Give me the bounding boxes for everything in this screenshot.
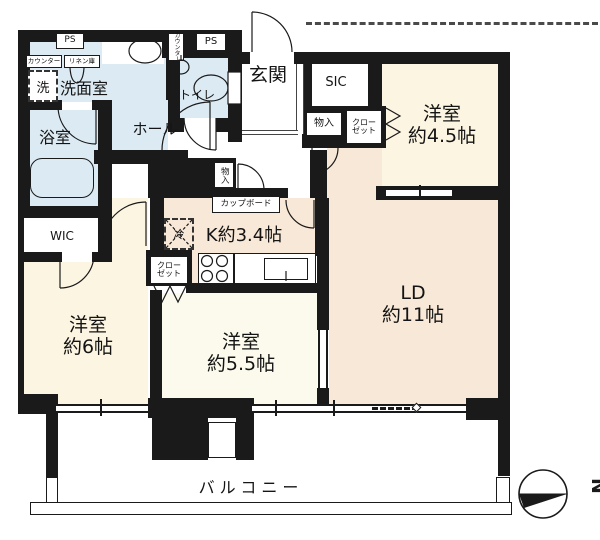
room-name: K約3.4帖 — [206, 225, 282, 246]
bedroom6-floor — [112, 198, 148, 262]
room-name: トイレ — [179, 88, 215, 102]
compass-north-label: N — [587, 478, 600, 494]
wall-segment — [315, 198, 329, 256]
living-dining-floor — [327, 148, 382, 198]
room-size: 約11帖 — [382, 304, 444, 326]
balcony-service-box — [208, 422, 236, 458]
entrance-step-line — [242, 130, 298, 135]
pillar — [152, 418, 208, 460]
window-ld-balcony — [252, 404, 466, 413]
closet-label: ゼット — [352, 127, 376, 135]
wall-segment — [466, 398, 500, 420]
pipe-space-right: PS — [196, 33, 226, 51]
counter-toilet: カウンター — [168, 33, 184, 61]
cupboard-label: カップボード — [220, 200, 271, 209]
room-name: 洋室 — [423, 103, 461, 125]
hall-label: ホール — [124, 118, 186, 142]
balcony-parapet — [46, 477, 58, 504]
window-bedroom6-balcony — [56, 404, 148, 413]
bathtub — [30, 158, 94, 198]
counter-label: カウンター — [173, 32, 179, 62]
compass-circle — [519, 470, 567, 518]
room-name: 洗面室 — [60, 80, 108, 99]
room-size: 約5.5帖 — [207, 353, 275, 375]
wic-label: WIC — [34, 224, 90, 248]
living-dining-label: LD 約11帖 — [358, 274, 468, 334]
storage-label: 物入 — [220, 167, 229, 184]
washroom-label: 洗面室 — [44, 76, 124, 102]
closet-bedroom45: クロー ゼット — [346, 110, 382, 144]
balcony-rail — [30, 502, 512, 515]
room-name: 洋室 — [222, 331, 260, 353]
room-name: 洋室 — [69, 314, 107, 336]
wall-segment — [18, 210, 24, 406]
storage-entry: 物入 — [306, 112, 342, 136]
balcony-parapet — [496, 477, 510, 504]
wall-segment — [150, 196, 164, 258]
ps-label: PS — [205, 37, 217, 48]
wall-segment — [186, 283, 317, 293]
window-tick — [275, 400, 277, 416]
stove — [198, 253, 234, 284]
window-tick — [333, 400, 335, 416]
pipe-space-left: PS — [56, 33, 84, 49]
storage-hall: 物入 — [214, 162, 234, 188]
window-bedroom55-ld — [318, 330, 328, 388]
room-name: 浴室 — [39, 129, 71, 148]
counter-label: カウンター — [28, 58, 61, 65]
ps-label: PS — [64, 36, 75, 45]
storage-label: 物入 — [314, 119, 334, 130]
room-name: LD — [400, 282, 425, 304]
entrance-label: 玄関 — [238, 62, 298, 88]
compass: N — [519, 470, 600, 518]
balcony-label: バルコニー — [158, 474, 344, 502]
window-tick — [419, 185, 421, 200]
wall-segment — [18, 394, 58, 414]
wall-segment — [216, 118, 242, 132]
site-boundary-dashed-line — [306, 22, 598, 25]
room-name: 玄関 — [249, 64, 287, 86]
floorplan: PS PS カウンター リネン庫 カウンター 洗 物入 物入 クロー ゼット ク… — [0, 0, 600, 540]
room-name: WIC — [50, 229, 74, 243]
wall-segment — [24, 252, 62, 262]
pillar — [236, 418, 254, 460]
wall-segment — [18, 206, 112, 218]
wall-segment — [368, 52, 382, 106]
sliding-partition-dashed — [454, 190, 492, 193]
wall-segment — [304, 64, 312, 108]
storage-hall-door-swing — [238, 164, 264, 190]
room-size: 約4.5帖 — [408, 125, 476, 147]
wall-segment — [294, 52, 510, 64]
shoe-closet-label: SIC — [312, 72, 360, 94]
compass-needle — [519, 494, 567, 508]
closet-label: ゼット — [157, 270, 181, 278]
cupboard: カップボード — [212, 196, 280, 213]
bedroom55-label: 洋室 約5.5帖 — [186, 324, 296, 382]
window-tick — [100, 399, 102, 416]
closet-bedroom55: クロー ゼット — [150, 256, 188, 284]
toilet-door-swing — [184, 118, 216, 150]
toilet-label: トイレ — [170, 84, 224, 106]
room-name: バルコニー — [199, 479, 304, 498]
entrance-door-swing — [252, 12, 292, 52]
balcony-wall — [46, 414, 58, 477]
bedroom45-label: 洋室 約4.5帖 — [390, 96, 494, 154]
linen-cabinet: リネン庫 — [64, 55, 100, 68]
wall-segment — [98, 100, 112, 220]
wall-segment — [148, 398, 254, 418]
kitchen-label: K約3.4帖 — [186, 222, 302, 250]
linen-label: リネン庫 — [69, 58, 95, 65]
counter-washroom: カウンター — [26, 55, 62, 68]
wall-segment — [317, 256, 329, 330]
washroom-vanity-counter — [102, 42, 164, 64]
kitchen-sink — [264, 258, 308, 280]
wall-segment — [310, 150, 327, 198]
bathroom-label: 浴室 — [26, 124, 84, 152]
room-name: SIC — [325, 75, 346, 90]
wall-segment — [92, 252, 112, 262]
room-size: 約6帖 — [63, 336, 113, 358]
refrigerator-label: 冷 — [174, 226, 185, 242]
wall-segment — [150, 290, 162, 405]
bedroom6-label: 洋室 約6帖 — [36, 306, 140, 366]
wall-segment — [317, 388, 329, 405]
room-name: ホール — [132, 121, 177, 139]
